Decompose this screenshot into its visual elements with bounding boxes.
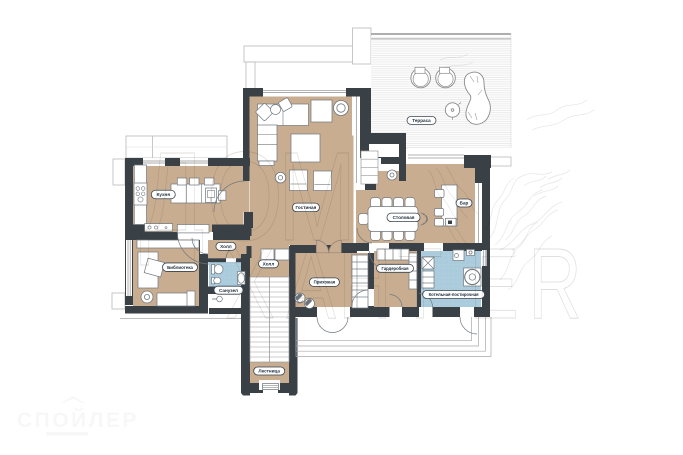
svg-text:СПОЙЛЕР: СПОЙЛЕР [17,408,139,432]
svg-text:Д: Д [140,126,205,267]
svg-text:R: R [528,227,581,340]
svg-text:Лестница: Лестница [258,369,280,374]
svg-text:Е: Е [469,227,518,340]
svg-text:Терраса: Терраса [412,118,431,123]
svg-text:А: А [286,227,336,340]
svg-text:Н: Н [338,227,391,340]
svg-text:Столовая: Столовая [393,215,415,220]
svg-text:Т: Т [397,227,442,340]
svg-text:Бар: Бар [460,201,469,206]
svg-text:Х: Х [225,227,274,340]
